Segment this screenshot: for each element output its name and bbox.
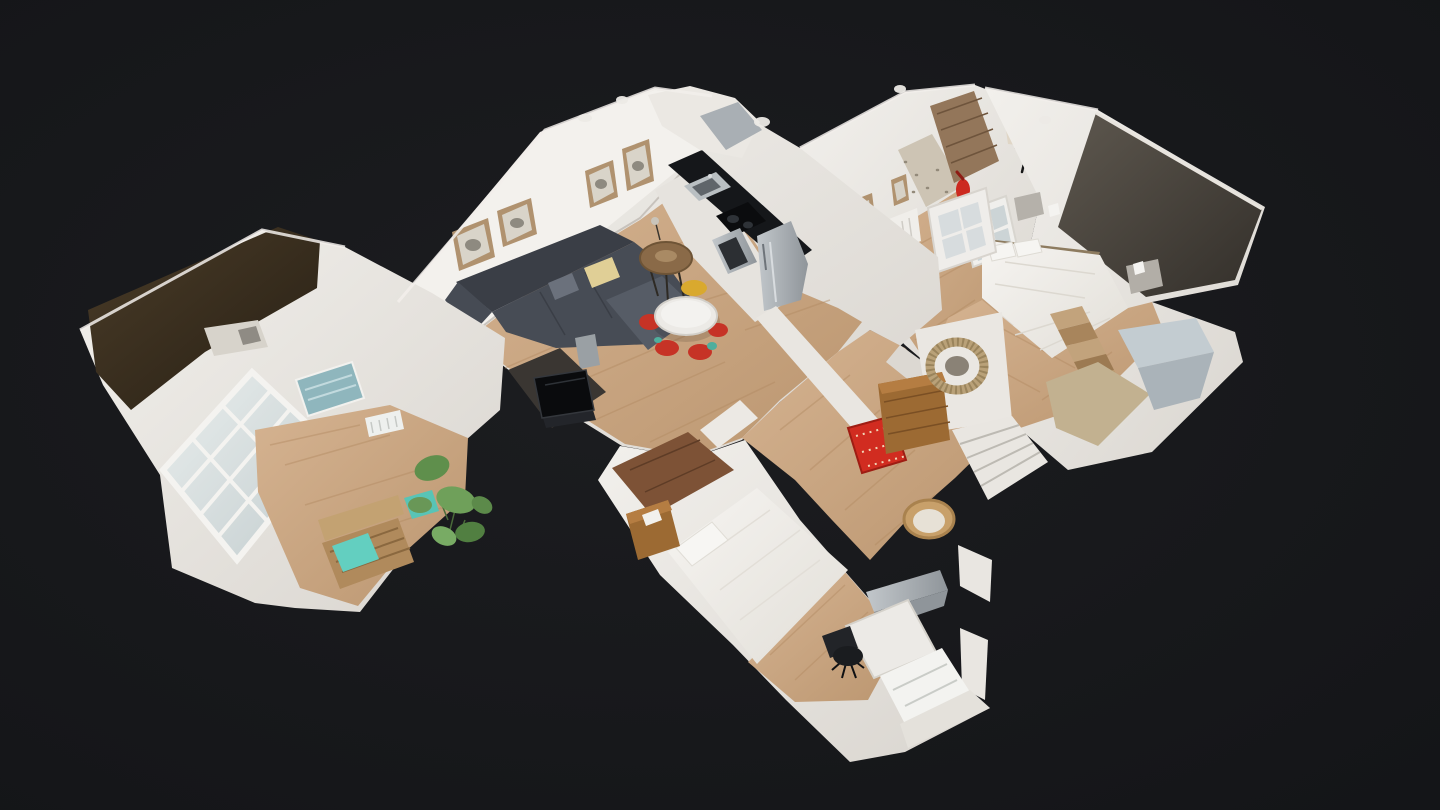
plant-leaf xyxy=(408,497,432,513)
burner xyxy=(743,222,753,229)
dollhouse-canvas[interactable] xyxy=(0,0,1440,810)
faucet xyxy=(708,174,712,178)
mesh-artifact xyxy=(894,85,906,93)
frame-art xyxy=(595,179,607,189)
tv-screen xyxy=(534,370,594,418)
wicker-chair xyxy=(904,500,954,538)
burner xyxy=(727,215,739,223)
teal-chair-accent xyxy=(654,337,662,343)
mesh-artifact xyxy=(616,96,628,104)
teal-chair-accent xyxy=(707,342,717,350)
mesh-artifact xyxy=(754,117,770,127)
frame-art xyxy=(510,218,524,228)
mirror-glass xyxy=(945,356,969,376)
side-table-decor xyxy=(655,250,677,262)
yellow-chair xyxy=(681,280,707,296)
mesh-artifact xyxy=(578,114,592,122)
dining-table-top xyxy=(661,300,711,328)
frame-art xyxy=(632,161,644,171)
mesh-artifact xyxy=(1039,116,1051,124)
dollhouse-viewport[interactable] xyxy=(0,0,1440,810)
wicker-chair-cushion xyxy=(913,509,945,533)
table-lamp xyxy=(651,217,659,225)
chair-seat xyxy=(833,646,863,666)
frame-art xyxy=(465,239,481,251)
